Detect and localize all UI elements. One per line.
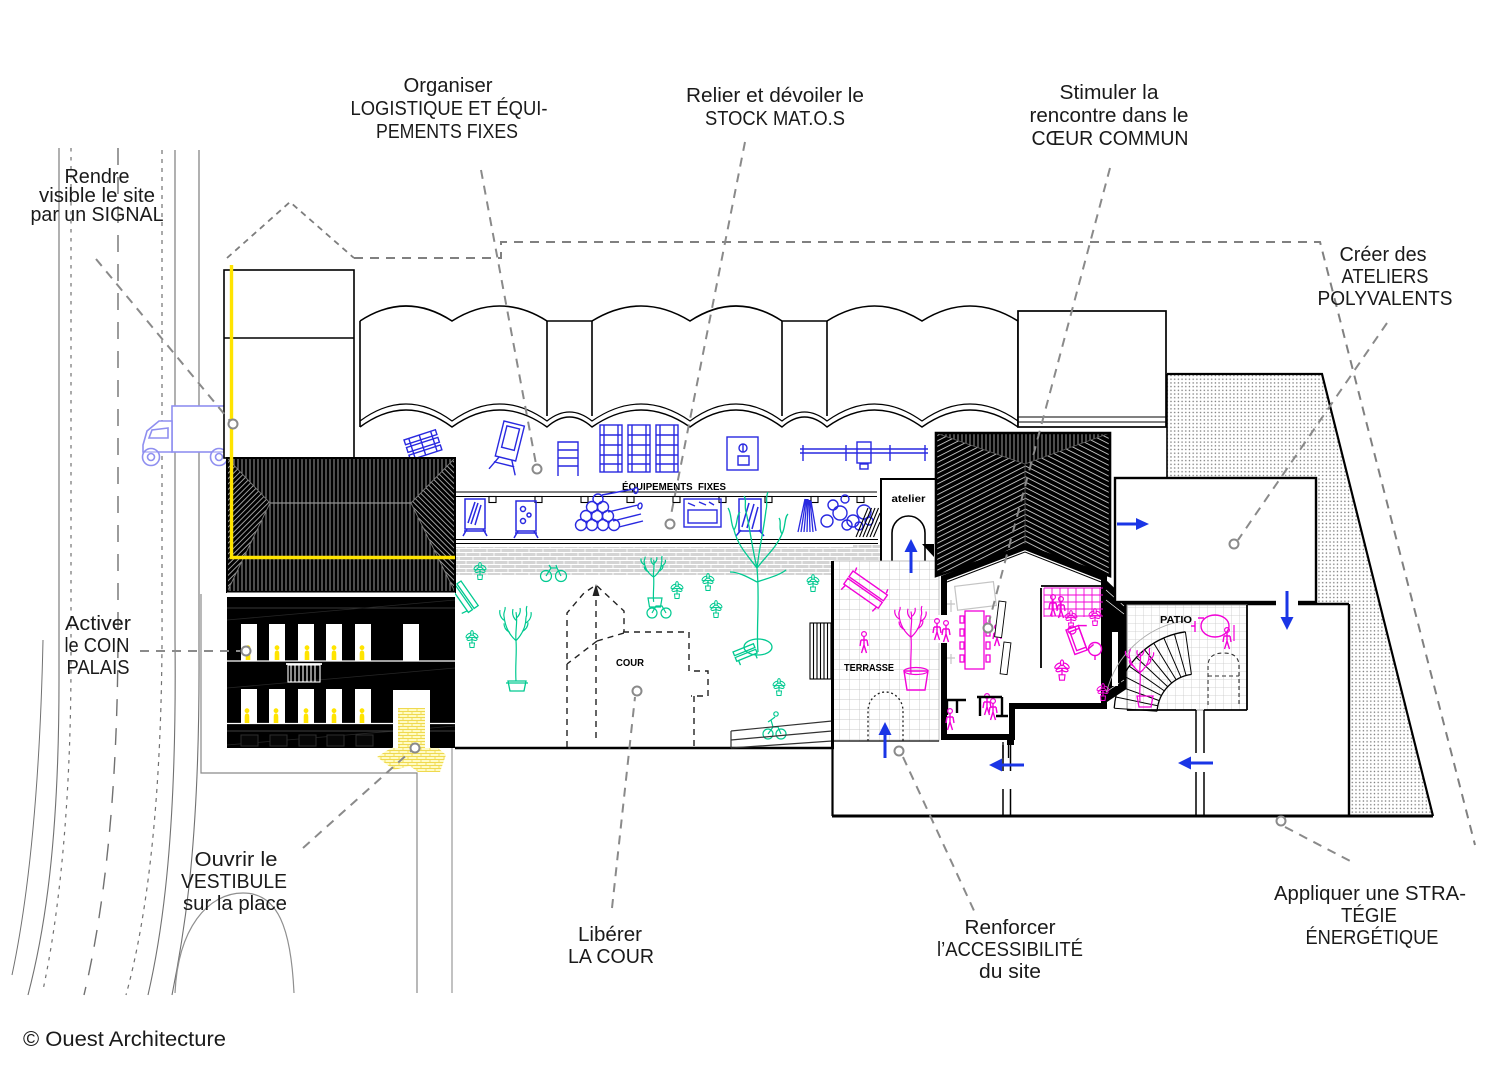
svg-text:du site: du site xyxy=(979,960,1041,983)
svg-text:COUR: COUR xyxy=(616,658,645,669)
svg-text:LOGISTIQUE ET ÉQUI-: LOGISTIQUE ET ÉQUI- xyxy=(351,97,548,120)
svg-text:STOCK MAT.O.S: STOCK MAT.O.S xyxy=(705,107,845,130)
svg-text:Créer des: Créer des xyxy=(1340,243,1427,266)
svg-text:Libérer: Libérer xyxy=(578,923,642,946)
svg-text:CŒUR COMMUN: CŒUR COMMUN xyxy=(1032,127,1189,150)
svg-text:ÉNERGÉTIQUE: ÉNERGÉTIQUE xyxy=(1306,926,1439,949)
svg-text:par un SIGNAL: par un SIGNAL xyxy=(31,203,164,226)
svg-text:ATELIERS: ATELIERS xyxy=(1342,265,1429,288)
svg-text:le COIN: le COIN xyxy=(65,634,130,657)
svg-text:Stimuler la: Stimuler la xyxy=(1060,81,1160,104)
svg-text:PALAIS: PALAIS xyxy=(67,656,130,679)
svg-text:PATIO: PATIO xyxy=(1160,615,1192,626)
svg-text:VESTIBULE: VESTIBULE xyxy=(181,870,287,893)
svg-text:© Ouest Architecture: © Ouest Architecture xyxy=(23,1028,226,1051)
svg-text:TÉGIE: TÉGIE xyxy=(1341,904,1397,927)
svg-text:Activer: Activer xyxy=(65,612,131,635)
svg-text:LA COUR: LA COUR xyxy=(568,945,654,968)
svg-text:Organiser: Organiser xyxy=(404,74,493,97)
svg-text:sur la place: sur la place xyxy=(183,892,287,915)
svg-text:TERRASSE: TERRASSE xyxy=(844,663,894,674)
svg-text:Relier et dévoiler le: Relier et dévoiler le xyxy=(686,84,864,107)
svg-text:l’ACCESSIBILITÉ: l’ACCESSIBILITÉ xyxy=(937,938,1083,961)
svg-text:Ouvrir le: Ouvrir le xyxy=(195,848,278,871)
svg-text:PEMENTS FIXES: PEMENTS FIXES xyxy=(376,120,518,143)
svg-text:Renforcer: Renforcer xyxy=(965,916,1056,939)
svg-text:atelier: atelier xyxy=(892,493,926,505)
svg-text:POLYVALENTS: POLYVALENTS xyxy=(1318,287,1453,310)
svg-text:Appliquer une STRA-: Appliquer une STRA- xyxy=(1274,882,1466,905)
svg-text:rencontre dans le: rencontre dans le xyxy=(1030,104,1189,127)
